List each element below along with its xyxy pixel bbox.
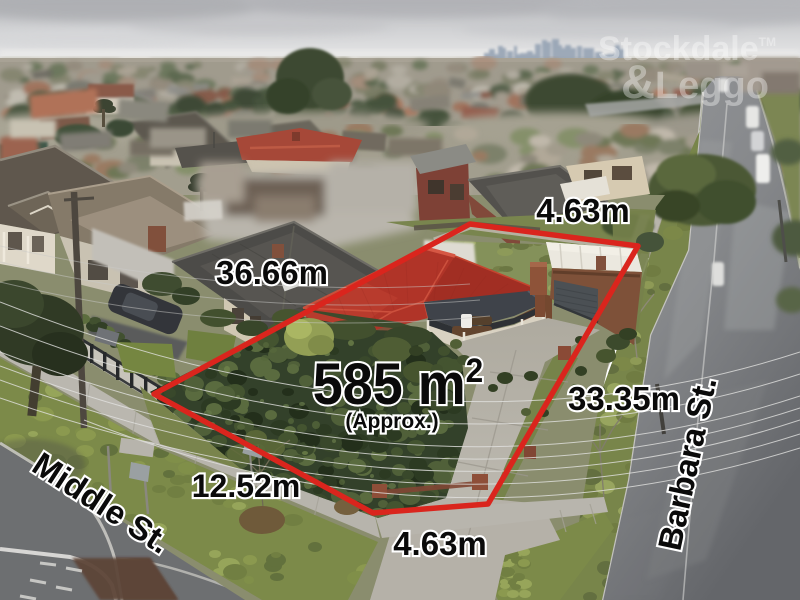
svg-text:4.63m: 4.63m [536, 192, 630, 229]
svg-text:(Approx.): (Approx.) [345, 410, 438, 433]
svg-text:36.66m: 36.66m [216, 254, 328, 291]
svg-text:585 m2: 585 m2 [313, 351, 484, 416]
svg-text:4.63m: 4.63m [393, 525, 487, 562]
svg-text:12.52m: 12.52m [192, 468, 301, 504]
svg-text:33.35m: 33.35m [568, 380, 680, 417]
